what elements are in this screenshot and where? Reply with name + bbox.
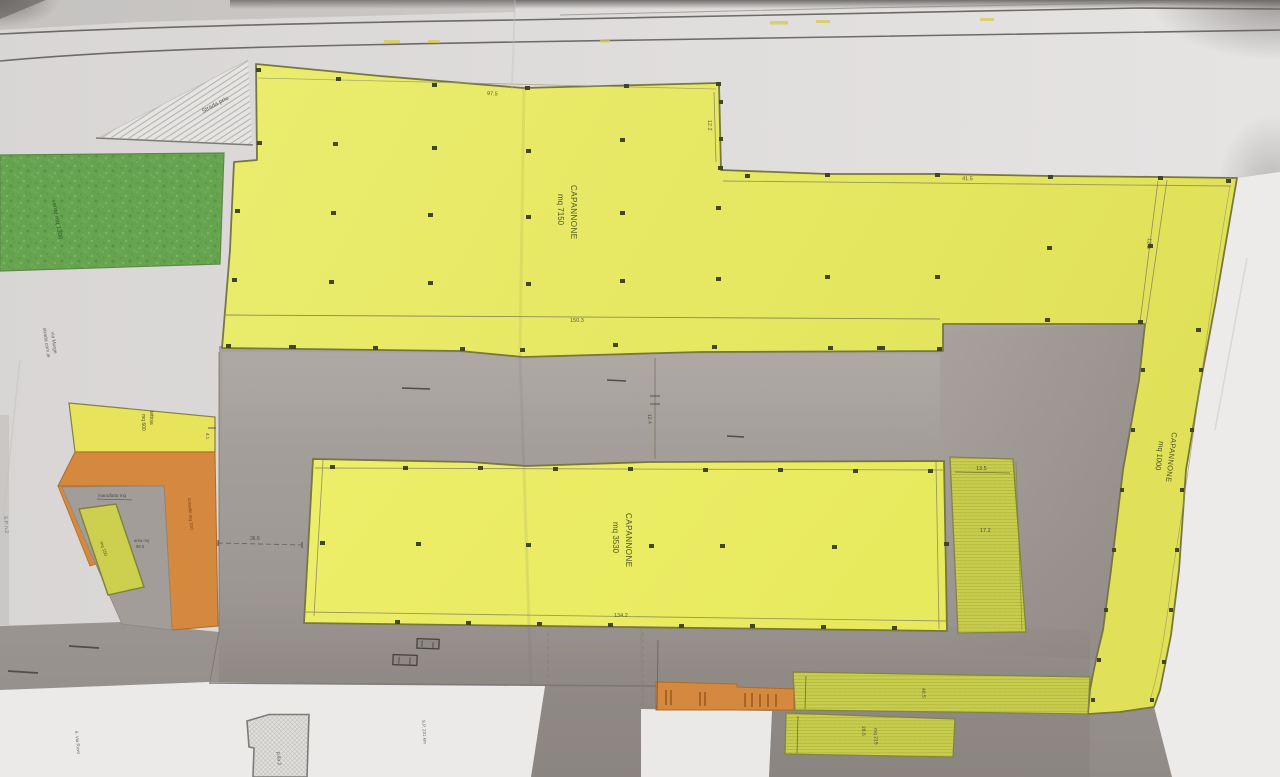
svg-text:mq 3530: mq 3530 — [611, 522, 620, 554]
svg-text:manufatto mq: manufatto mq — [98, 493, 127, 498]
svg-text:12.2: 12.2 — [706, 120, 712, 131]
svg-text:97.5: 97.5 — [487, 91, 498, 98]
svg-text:4.1: 4.1 — [205, 433, 210, 440]
svg-text:mq 215: mq 215 — [872, 728, 879, 745]
svg-text:mq 600: mq 600 — [140, 414, 146, 431]
svg-text:mq 7150: mq 7150 — [556, 194, 565, 226]
svg-text:17.2: 17.2 — [980, 528, 991, 534]
svg-text:98.5: 98.5 — [136, 544, 145, 549]
svg-text:41.5: 41.5 — [962, 176, 973, 182]
svg-text:36.6: 36.6 — [250, 536, 260, 542]
svg-text:tettoia: tettoia — [148, 411, 154, 425]
svg-text:p.lla 2: p.lla 2 — [275, 752, 282, 766]
svg-text:12.4: 12.4 — [646, 414, 652, 424]
svg-text:28.6: 28.6 — [860, 726, 866, 736]
svg-text:area mq: area mq — [134, 538, 150, 543]
svg-text:134.2: 134.2 — [614, 613, 628, 619]
svg-text:CAPANNONE: CAPANNONE — [569, 185, 578, 240]
svg-text:13.5: 13.5 — [976, 466, 987, 472]
svg-text:40.5: 40.5 — [920, 688, 926, 698]
svg-text:CAPANNONE: CAPANNONE — [624, 513, 633, 568]
svg-text:150.3: 150.3 — [570, 318, 584, 324]
